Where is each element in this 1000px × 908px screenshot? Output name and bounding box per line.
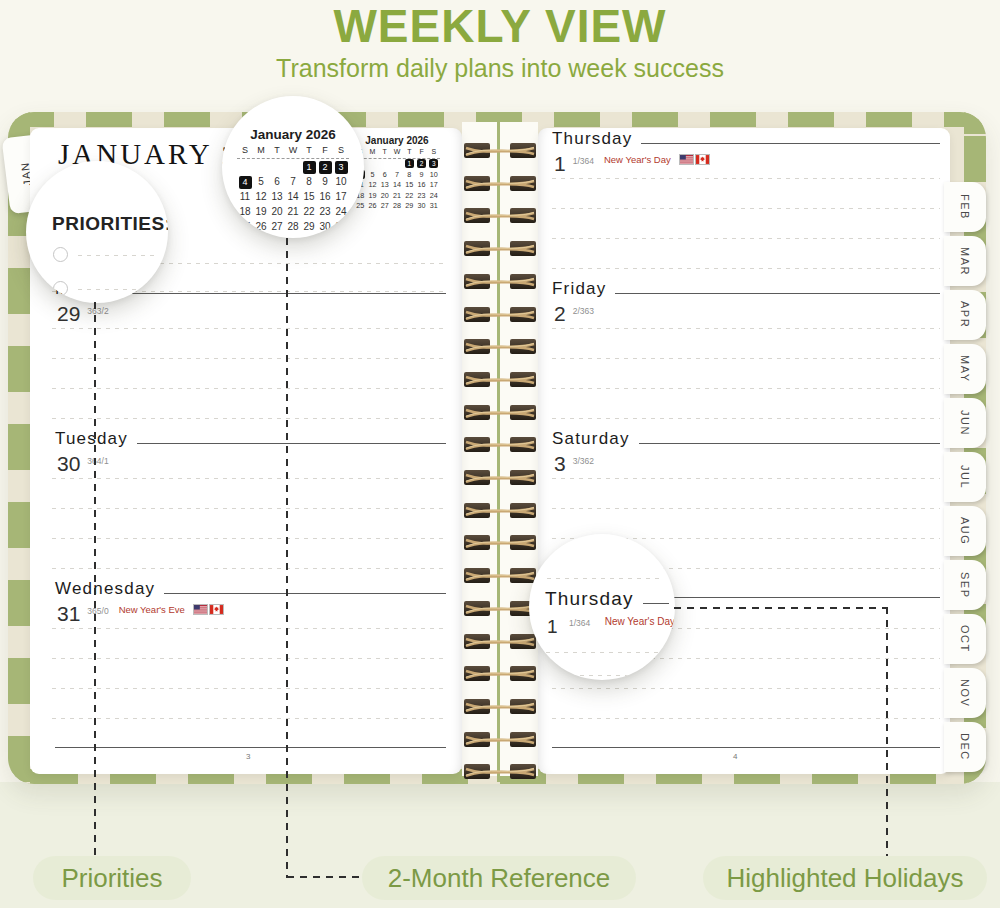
- coil-wire-icon: [464, 338, 536, 356]
- coil-wire-icon: [464, 404, 536, 422]
- ruled-line: [52, 478, 446, 479]
- spiral-coil: [464, 698, 536, 716]
- ruled-line: [552, 238, 940, 239]
- month-tab-label: OCT: [959, 625, 971, 653]
- ruled-line: [52, 328, 446, 329]
- ruled-line: [52, 658, 446, 659]
- month-tab-mar: MAR: [944, 236, 986, 286]
- spiral-coil: [464, 469, 536, 487]
- annotation-line-reference-horizontal: [287, 876, 363, 878]
- spiral-coil: [464, 175, 536, 193]
- highlighted-date: 2: [319, 161, 332, 174]
- coil-wire-icon: [464, 633, 536, 651]
- ruled-line: [52, 418, 446, 419]
- day-section-friday: Friday: [552, 280, 940, 298]
- tuesday-date-row: 30364/1: [57, 452, 448, 478]
- spiral-coil: [464, 207, 536, 225]
- day-rule-line: [639, 443, 940, 444]
- saturday-day-count: 3/362: [573, 456, 594, 466]
- magnified-holiday-label: New Year's Day: [605, 616, 675, 627]
- month-tab-sep: SEP: [944, 560, 986, 610]
- annotation-line-reference-vertical: [286, 238, 288, 878]
- mini-calendar-2: January 2026SMTWTFS123456789101112131415…: [354, 134, 440, 212]
- day-rule-line: [132, 293, 446, 294]
- wednesday-holiday-label: New Year's Eve: [119, 604, 185, 615]
- day-rule-line: [615, 293, 940, 294]
- us-flag-icon: [194, 605, 207, 614]
- ruled-line: [552, 418, 940, 419]
- right-page-bottom-line: [552, 747, 940, 748]
- spiral-coil: [464, 240, 536, 258]
- coil-wire-icon: [464, 665, 536, 683]
- ruled-line: [552, 718, 940, 719]
- spiral-coil: [464, 306, 536, 324]
- day-rule-line: [137, 443, 446, 444]
- month-tab-label: JUL: [959, 465, 971, 489]
- coil-wire-icon: [464, 371, 536, 389]
- ruled-line: [552, 208, 940, 209]
- month-tab-label: MAR: [959, 247, 971, 276]
- magnified-day-date: 1: [547, 616, 558, 637]
- tuesday-date: 30: [57, 452, 80, 475]
- highlighted-date: 2: [417, 159, 426, 168]
- mini-calendar-2-dates: 1234567891011121314151617181920212223242…: [354, 159, 440, 212]
- highlighted-date: 3: [429, 159, 438, 168]
- ruled-line: [537, 652, 667, 653]
- month-tab-jul: JUL: [944, 452, 986, 502]
- us-flag-icon: [680, 155, 693, 164]
- left-page-bottom-line: [55, 747, 446, 748]
- friday-day-count: 2/363: [573, 306, 594, 316]
- coil-wire-icon: [464, 175, 536, 193]
- mini-calendar-2-title: January 2026: [354, 134, 440, 147]
- ruled-line: [547, 578, 659, 579]
- coil-wire-icon: [464, 469, 536, 487]
- spiral-coil: [464, 763, 536, 781]
- canada-flag-icon: [696, 155, 709, 164]
- monday-date: 29: [57, 302, 80, 325]
- month-tab-label: AUG: [959, 517, 971, 545]
- wednesday-date-row: 31365/0New Year's Eve: [57, 602, 448, 628]
- ruled-line: [552, 358, 940, 359]
- month-tab-label: MAY: [959, 355, 971, 383]
- magnified-day-name: Thursday: [545, 590, 643, 608]
- ruled-line: [52, 628, 446, 629]
- ruled-line: [552, 388, 940, 389]
- spiral-coil: [464, 142, 536, 160]
- day-section-saturday: Saturday: [552, 430, 940, 448]
- saturday-label: Saturday: [552, 430, 639, 448]
- ruled-line: [52, 358, 446, 359]
- wednesday-label: Wednesday: [55, 580, 164, 598]
- magnified-calendar-dates: 1234567891011121314151617181920212223242…: [237, 159, 349, 234]
- coil-wire-icon: [464, 240, 536, 258]
- magnified-calendar-weekday-row: SMTWTFS: [237, 144, 349, 159]
- month-tab-label: APR: [959, 301, 971, 328]
- spiral-coil: [464, 436, 536, 454]
- coil-wire-icon: [464, 600, 536, 618]
- coil-wire-icon: [464, 698, 536, 716]
- priority-bullet: [53, 247, 68, 262]
- ruled-line: [552, 178, 940, 179]
- day-rule-line: [164, 593, 446, 594]
- coil-wire-icon: [464, 207, 536, 225]
- month-tab-label: NOV: [959, 679, 971, 707]
- ruled-line: [52, 568, 446, 569]
- left-page-number: 3: [246, 752, 250, 761]
- friday-date-row: 22/363: [554, 302, 942, 328]
- ruled-line: [52, 508, 446, 509]
- magnified-calendar: January 2026SMTWTFS123456789101112131415…: [237, 126, 349, 234]
- highlighted-date: 3: [335, 161, 348, 174]
- month-tab-oct: OCT: [944, 614, 986, 664]
- spiral-coil: [464, 567, 536, 585]
- callout-priorities: Priorities: [33, 856, 191, 900]
- mini-calendar-2-weekday-row: SMTWTFS: [354, 147, 440, 159]
- coil-wire-icon: [464, 534, 536, 552]
- highlighted-date: 1: [303, 161, 316, 174]
- priorities-magnifier: PRIORITIES:: [26, 161, 168, 303]
- magnified-day-count: 1/364: [569, 618, 590, 628]
- ruled-line: [52, 388, 446, 389]
- saturday-date: 3: [554, 452, 566, 475]
- priority-line: [78, 255, 156, 256]
- monday-date-row: 29363/2: [57, 302, 448, 328]
- holiday-magnifier: Thursday 1 1/364 New Year's Day: [529, 534, 675, 680]
- ruled-line: [552, 268, 940, 269]
- spiral-coil: [464, 731, 536, 749]
- page-title: WEEKLY VIEW: [0, 0, 1000, 52]
- ruled-line: [52, 718, 446, 719]
- friday-date: 2: [554, 302, 566, 325]
- thursday-date-row: 11/364New Year's Day: [554, 152, 942, 178]
- month-tab-label: SEP: [959, 572, 971, 599]
- coil-wire-icon: [464, 763, 536, 781]
- ruled-line: [52, 688, 446, 689]
- priorities-heading: PRIORITIES:: [52, 213, 168, 235]
- coil-wire-icon: [464, 436, 536, 454]
- weekly-view-poster: WEEKLY VIEW Transform daily plans into w…: [0, 0, 1000, 908]
- spiral-coil: [464, 371, 536, 389]
- coil-wire-icon: [464, 502, 536, 520]
- spiral-coil: [464, 633, 536, 651]
- spiral-coil: [464, 502, 536, 520]
- month-tab-label: JUN: [959, 410, 971, 436]
- day-section-tuesday: Tuesday: [55, 430, 446, 448]
- spiral-coil: [464, 338, 536, 356]
- day-section-wednesday: Wednesday: [55, 580, 446, 598]
- wednesday-date: 31: [57, 602, 80, 625]
- page-subtitle: Transform daily plans into week success: [0, 52, 1000, 84]
- coil-wire-icon: [464, 731, 536, 749]
- annotation-line-priorities: [94, 302, 96, 858]
- annotation-line-holidays-vertical: [886, 607, 888, 857]
- callout-highlighted-holidays: Highlighted Holidays: [703, 856, 987, 900]
- spiral-coil: [464, 600, 536, 618]
- canada-flag-icon: [210, 605, 223, 614]
- magnified-calendar-title: January 2026: [237, 126, 349, 144]
- day-rule-line: [643, 603, 669, 604]
- month-tab-feb: FEB: [944, 182, 986, 232]
- callout-2-month-reference: 2-Month Reference: [362, 856, 636, 900]
- day-rule-line: [641, 143, 940, 144]
- ruled-line: [52, 538, 446, 539]
- coil-wire-icon: [464, 567, 536, 585]
- month-tab-apr: APR: [944, 290, 986, 340]
- thursday-date: 1: [554, 152, 566, 175]
- spiral-coil: [464, 534, 536, 552]
- day-section-thursday: Thursday: [552, 130, 940, 148]
- spiral-coil: [464, 665, 536, 683]
- spiral-coil: [464, 273, 536, 291]
- ruled-line: [552, 508, 940, 509]
- thursday-label: Thursday: [552, 130, 641, 148]
- month-tab-label: FEB: [959, 194, 971, 220]
- month-tab-nov: NOV: [944, 668, 986, 718]
- month-tab-label: DEC: [959, 733, 971, 761]
- wednesday-day-count: 365/0: [87, 606, 108, 616]
- monday-day-count: 363/2: [87, 306, 108, 316]
- ruled-line: [552, 688, 940, 689]
- right-page-number: 4: [733, 752, 737, 761]
- annotation-line-holidays-horizontal: [674, 607, 888, 609]
- tuesday-day-count: 364/1: [87, 456, 108, 466]
- thursday-day-count: 1/364: [573, 156, 594, 166]
- ruled-line: [552, 328, 940, 329]
- spiral-coil: [464, 404, 536, 422]
- highlighted-date: 1: [405, 159, 414, 168]
- calendar-magnifier: January 2026SMTWTFS123456789101112131415…: [222, 96, 364, 238]
- coil-wire-icon: [464, 306, 536, 324]
- month-tab-may: MAY: [944, 344, 986, 394]
- month-tab-jun: JUN: [944, 398, 986, 448]
- coil-wire-icon: [464, 273, 536, 291]
- ruled-line: [552, 478, 940, 479]
- highlighted-date: 4: [239, 176, 252, 189]
- saturday-date-row: 33/362: [554, 452, 942, 478]
- friday-label: Friday: [552, 280, 615, 298]
- coil-wire-icon: [464, 142, 536, 160]
- month-tab-dec: DEC: [944, 722, 986, 772]
- month-tab-aug: AUG: [944, 506, 986, 556]
- thursday-holiday-label: New Year's Day: [604, 154, 671, 165]
